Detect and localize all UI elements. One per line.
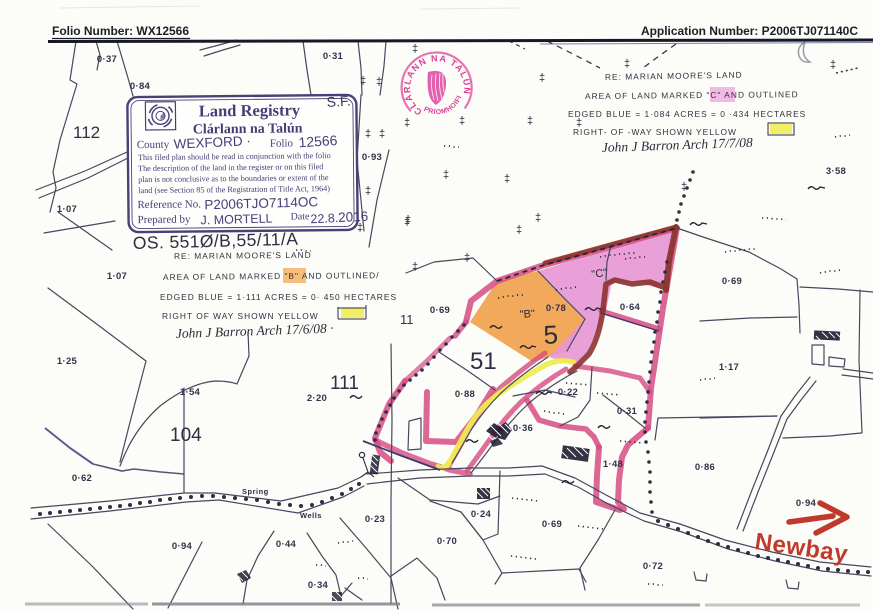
svg-text:‡: ‡ <box>830 59 836 71</box>
svg-text:0·69: 0·69 <box>430 305 450 316</box>
svg-text:1·48: 1·48 <box>603 459 623 470</box>
svg-text:‡: ‡ <box>516 224 522 236</box>
svg-text:‡: ‡ <box>527 115 533 127</box>
svg-text:112: 112 <box>73 123 100 142</box>
svg-text:104: 104 <box>170 425 202 446</box>
svg-text:‡: ‡ <box>681 181 687 193</box>
svg-text:‡: ‡ <box>504 173 510 185</box>
svg-text:Folio: Folio <box>270 137 294 149</box>
svg-text:1·07: 1·07 <box>57 204 77 215</box>
svg-text:0·78: 0·78 <box>546 303 566 314</box>
svg-text:2·20: 2·20 <box>307 393 327 404</box>
svg-text:P2006TJO7114OC: P2006TJO7114OC <box>204 194 318 212</box>
svg-text:5: 5 <box>543 319 559 350</box>
svg-text:0·23: 0·23 <box>365 514 385 525</box>
svg-text:1·25: 1·25 <box>57 356 78 367</box>
svg-text:‡: ‡ <box>405 214 411 226</box>
svg-text:"C": "C" <box>591 267 608 281</box>
svg-text:‡: ‡ <box>464 252 470 264</box>
svg-text:‡: ‡ <box>412 261 418 273</box>
svg-text:0·22: 0·22 <box>558 387 578 398</box>
svg-text:Spring: Spring <box>242 487 269 496</box>
svg-text:‡: ‡ <box>376 76 382 88</box>
svg-text:0·84: 0·84 <box>130 81 151 92</box>
svg-text:1·07: 1·07 <box>107 271 127 282</box>
svg-text:0·69: 0·69 <box>722 276 742 287</box>
svg-text:0·64: 0·64 <box>620 302 641 313</box>
svg-text:‡: ‡ <box>360 75 366 87</box>
svg-text:RE: MARIAN MOORE'S LAND: RE: MARIAN MOORE'S LAND <box>174 250 312 261</box>
svg-text:Date: Date <box>291 211 311 222</box>
svg-text:11: 11 <box>400 312 414 327</box>
svg-text:0·88: 0·88 <box>455 389 475 400</box>
svg-text:Reference No.: Reference No. <box>137 198 201 211</box>
svg-text:0·37: 0·37 <box>97 54 117 65</box>
svg-text:County: County <box>137 139 170 151</box>
svg-text:Prepared by: Prepared by <box>138 214 191 227</box>
svg-text:‡: ‡ <box>459 115 465 127</box>
svg-text:0·94: 0·94 <box>796 498 817 509</box>
svg-text:J. MORTELL: J. MORTELL <box>200 211 272 227</box>
svg-text:‡: ‡ <box>365 185 371 197</box>
svg-text:‡: ‡ <box>535 212 541 224</box>
svg-text:0·31: 0·31 <box>323 51 344 62</box>
svg-text:0·24: 0·24 <box>471 509 492 520</box>
svg-text:‡: ‡ <box>412 43 418 55</box>
svg-text:Application Number: P2006TJ071: Application Number: P2006TJ071140C <box>641 24 858 38</box>
svg-text:"B": "B" <box>519 308 535 321</box>
svg-text:‡: ‡ <box>539 72 545 84</box>
svg-text:EDGED BLUE = 1·111 ACRES =: EDGED BLUE = 1·111 ACRES = 0· 450 HECTAR… <box>160 292 397 302</box>
svg-text:AREA OF LAND MARKED "B" A: AREA OF LAND MARKED "B" AND OUTLINED/ <box>163 270 380 282</box>
svg-text:0·72: 0·72 <box>643 561 663 572</box>
svg-text:51: 51 <box>470 348 497 375</box>
svg-text:S.F.: S.F. <box>326 92 351 110</box>
svg-text:0·94: 0·94 <box>172 541 193 552</box>
svg-text:‡: ‡ <box>365 128 371 140</box>
svg-text:1·17: 1·17 <box>719 362 739 373</box>
svg-text:Folio Number: WX12566: Folio Number: WX12566 <box>52 24 189 38</box>
svg-text:AREA OF LAND MARKED "C" A: AREA OF LAND MARKED "C" AND OUTLINED <box>585 89 799 101</box>
svg-text:0·31: 0·31 <box>617 406 638 417</box>
svg-text:0·93: 0·93 <box>362 152 382 163</box>
svg-text:0·36: 0·36 <box>513 423 533 434</box>
svg-text:0·69: 0·69 <box>542 519 562 530</box>
svg-text:RIGHT OF WAY SHOWN YELLOW: RIGHT OF WAY SHOWN YELLOW <box>162 311 319 321</box>
svg-text:12566: 12566 <box>298 132 338 150</box>
svg-text:0·62: 0·62 <box>72 473 92 484</box>
svg-text:0·34: 0·34 <box>308 580 329 591</box>
svg-text:111: 111 <box>330 373 359 394</box>
svg-text:‡: ‡ <box>624 58 630 70</box>
svg-text:0·70: 0·70 <box>437 536 457 547</box>
svg-text:Wells: Wells <box>300 511 322 520</box>
svg-text:EDGED BLUE = 1·084 ACRES =: EDGED BLUE = 1·084 ACRES = 0 ·434 HECTAR… <box>568 109 806 119</box>
svg-text:Land Registry: Land Registry <box>199 100 301 120</box>
svg-text:0·86: 0·86 <box>695 462 715 473</box>
svg-text:‡: ‡ <box>379 128 385 140</box>
svg-text:‡: ‡ <box>404 117 410 129</box>
svg-text:0·44: 0·44 <box>276 539 297 550</box>
svg-text:3·58: 3·58 <box>826 166 846 177</box>
svg-text:22.8.2016: 22.8.2016 <box>310 209 368 227</box>
svg-text:‡: ‡ <box>443 169 449 181</box>
svg-text:1·54: 1·54 <box>180 387 201 398</box>
